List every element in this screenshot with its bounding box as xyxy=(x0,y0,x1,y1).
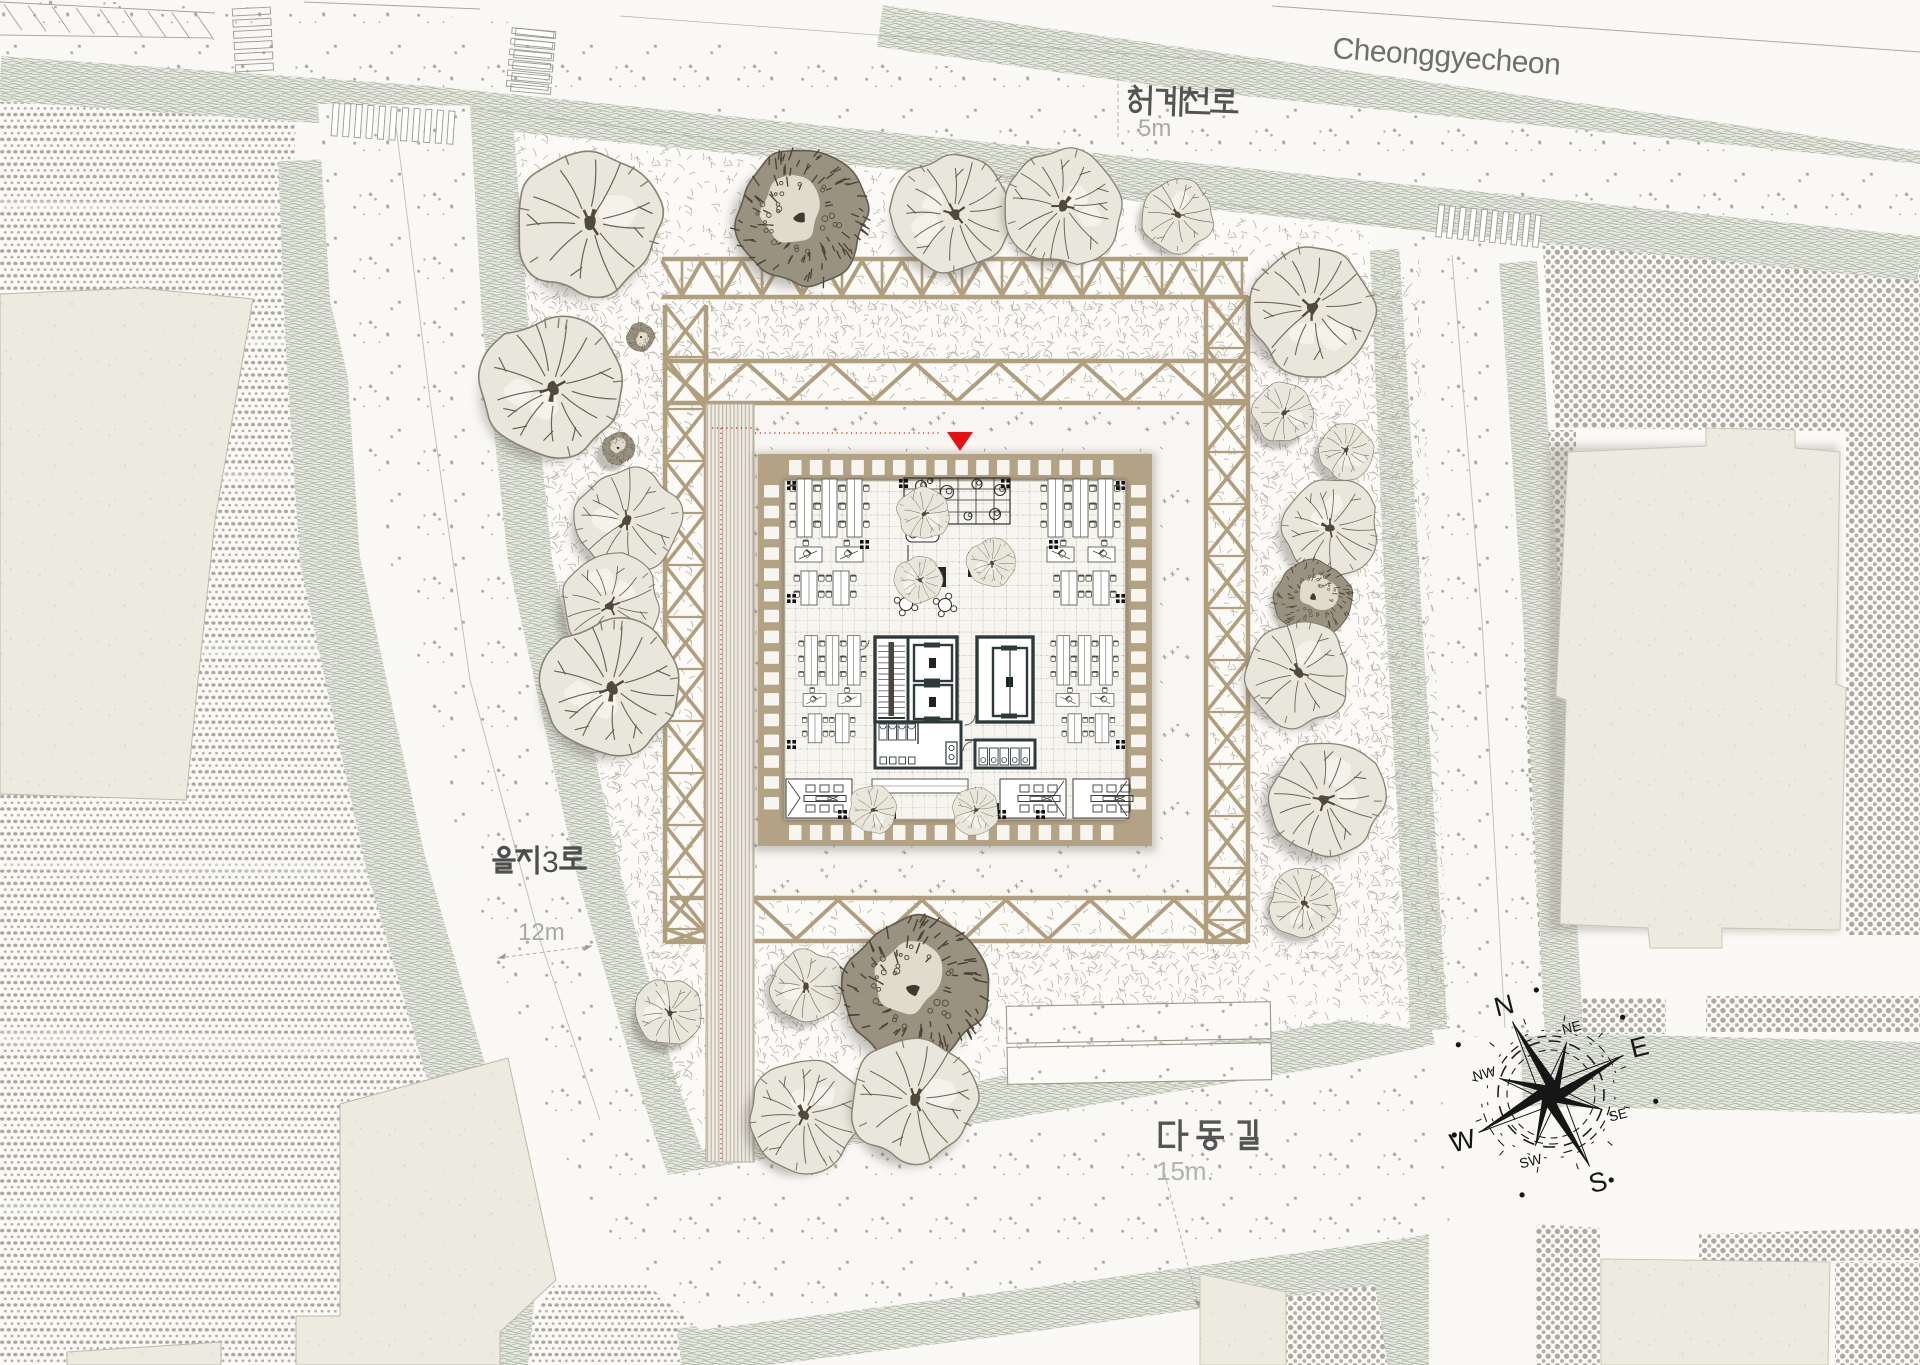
svg-text:5m: 5m xyxy=(1138,115,1171,142)
svg-text:3: 3 xyxy=(542,846,559,879)
svg-text:15m.: 15m. xyxy=(1156,1156,1214,1186)
svg-text:12m: 12m xyxy=(518,919,565,946)
